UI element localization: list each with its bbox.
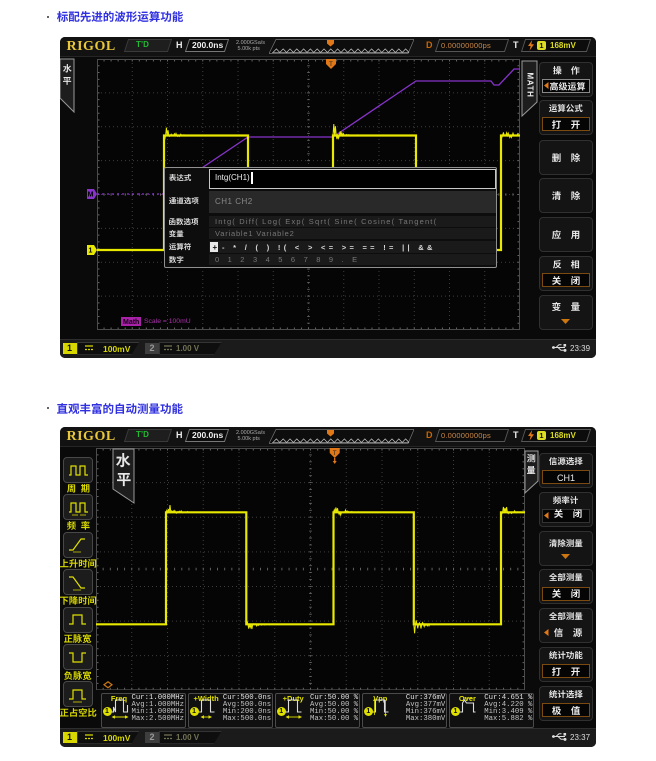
svg-text:T: T	[333, 451, 337, 457]
svg-text:T: T	[329, 62, 333, 68]
svg-text:1: 1	[89, 248, 93, 255]
svg-text:M: M	[88, 192, 94, 199]
